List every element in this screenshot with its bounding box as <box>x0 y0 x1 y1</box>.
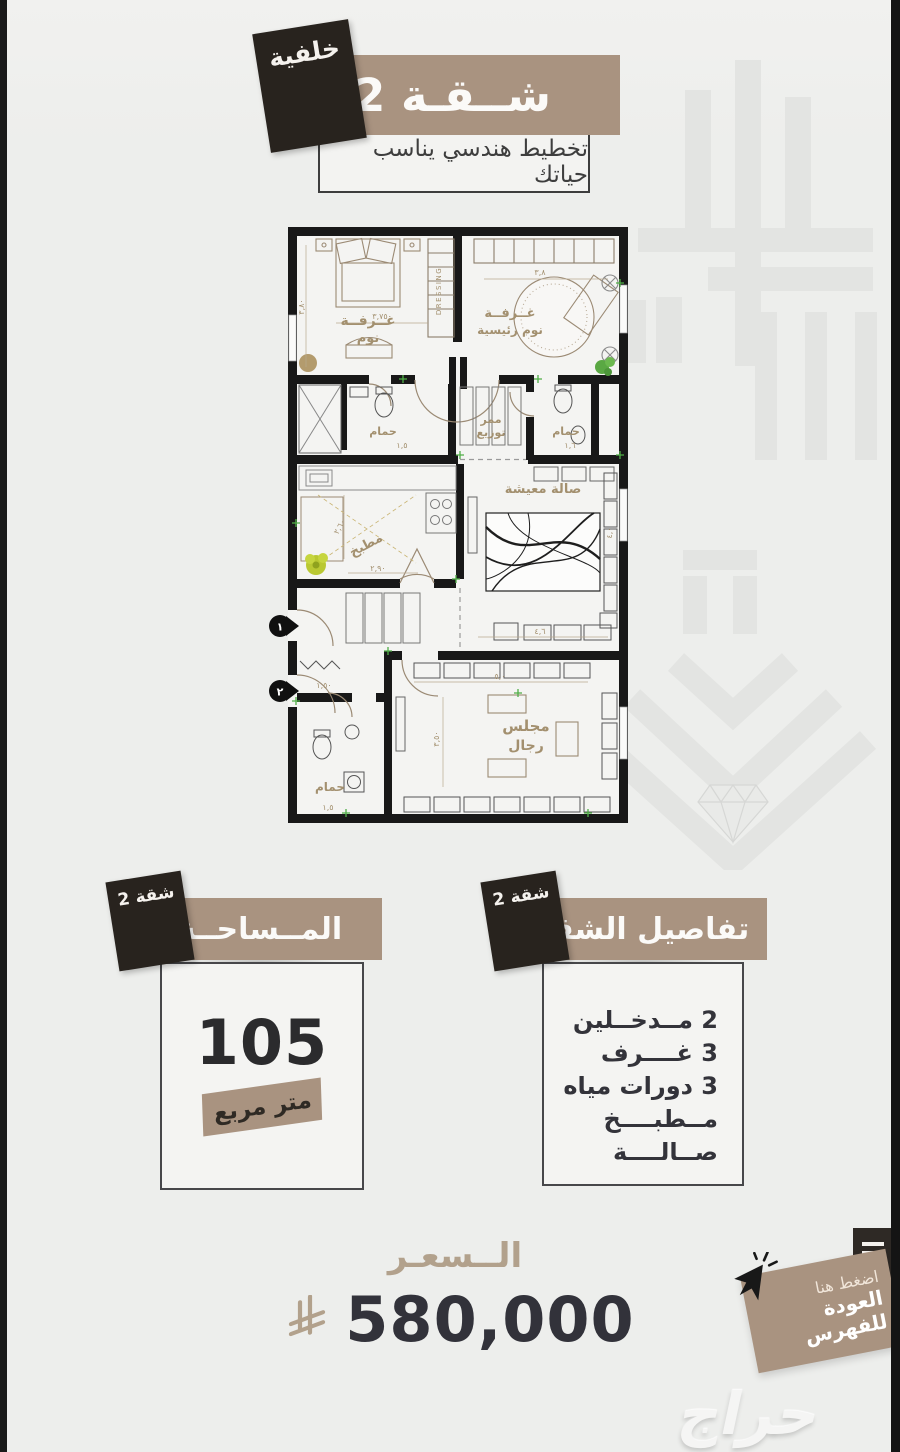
svg-text:٣,٧٥: ٣,٧٥ <box>372 312 387 321</box>
area-title: المــساحــة <box>178 912 342 947</box>
area-unit-ribbon: متر مربع <box>202 1078 322 1137</box>
bath1-label: حمام <box>369 425 397 438</box>
svg-text:١,٥٠: ١,٥٠ <box>316 681 331 690</box>
cursor-click-icon <box>730 1252 786 1312</box>
svg-text:٣,٨٠: ٣,٨٠ <box>297 299 306 314</box>
svg-text:٤,٦: ٤,٦ <box>534 627 545 636</box>
details-box: 2 مــدخــلين 3 غــــرف 3 دورات مياه مــط… <box>542 962 744 1186</box>
left-edge-strip <box>0 0 7 1452</box>
haraj-watermark: حراج <box>601 1380 899 1448</box>
plant-pot <box>299 354 317 372</box>
subtitle-box: تخطيط هندسي يناسب حياتك <box>318 131 590 193</box>
saudi-riyal-symbol-icon <box>285 1295 327 1345</box>
hamburger-icon <box>862 1242 884 1246</box>
svg-text:٢: ٢ <box>277 686 284 699</box>
brand-watermark-pattern <box>628 50 892 870</box>
detail-item-kitchen: مــطبــــخ <box>552 1103 718 1136</box>
svg-text:٤,٠: ٤,٠ <box>605 527 614 538</box>
right-edge-strip <box>891 0 900 1452</box>
price-label: الــسعـر <box>330 1236 580 1276</box>
svg-text:رجال: رجال <box>508 738 544 754</box>
master-bedroom-label: غــرفــة <box>484 306 535 321</box>
svg-text:توزيع: توزيع <box>476 426 505 439</box>
background-corner-badge: خلفية <box>252 19 367 153</box>
detail-item-bathrooms: 3 دورات مياه <box>552 1070 718 1103</box>
area-value: 105 <box>162 1006 362 1079</box>
apartment-title: شــقـة 2 <box>354 69 551 122</box>
svg-text:٥,٠: ٥,٠ <box>494 672 505 681</box>
svg-text:نوم: نوم <box>357 331 380 346</box>
price-value: 580,000 <box>345 1283 634 1356</box>
detail-item-rooms: 3 غــــرف <box>552 1037 718 1070</box>
area-box: 105 متر مربع <box>160 962 364 1190</box>
svg-text:٣,٨: ٣,٨ <box>534 268 546 277</box>
floor-plan: غــرفــة نوم غــرفــة نوم رئيسية حمام مم… <box>268 227 628 823</box>
svg-text:١: ١ <box>277 621 284 634</box>
svg-text:١,٥: ١,٥ <box>322 803 333 812</box>
subtitle-text: تخطيط هندسي يناسب حياتك <box>320 136 588 188</box>
majlis-label: مجلس <box>502 717 549 735</box>
details-corner-badge: شقة 2 <box>480 871 569 972</box>
flyer-page: شــقـة 2 خلفية تخطيط هندسي يناسب حياتك <box>0 0 900 1452</box>
svg-text:٢,٩٠: ٢,٩٠ <box>370 564 385 573</box>
bath3-label: حمام <box>315 780 345 795</box>
living-label: صالة معيشة <box>505 482 582 497</box>
svg-text:١,٦: ١,٦ <box>564 441 575 450</box>
background-corner-badge-label: خلفية <box>267 33 355 151</box>
detail-item-entrances: 2 مــدخــلين <box>552 1004 718 1037</box>
dressing-label: DRESSING <box>435 267 443 315</box>
detail-item-hall: صــالــــة <box>552 1136 718 1169</box>
svg-text:نوم رئيسية: نوم رئيسية <box>477 323 543 338</box>
svg-text:١,٥: ١,٥ <box>396 441 407 450</box>
area-corner-badge: شقة 2 <box>105 871 194 972</box>
bath2-label: حمام <box>552 425 580 438</box>
svg-text:٣,٥٠: ٣,٥٠ <box>432 731 441 746</box>
corridor-label: ممر <box>479 413 501 426</box>
details-title: تفاصيل الشقة <box>535 912 749 947</box>
price-row: 580,000 <box>240 1283 680 1356</box>
